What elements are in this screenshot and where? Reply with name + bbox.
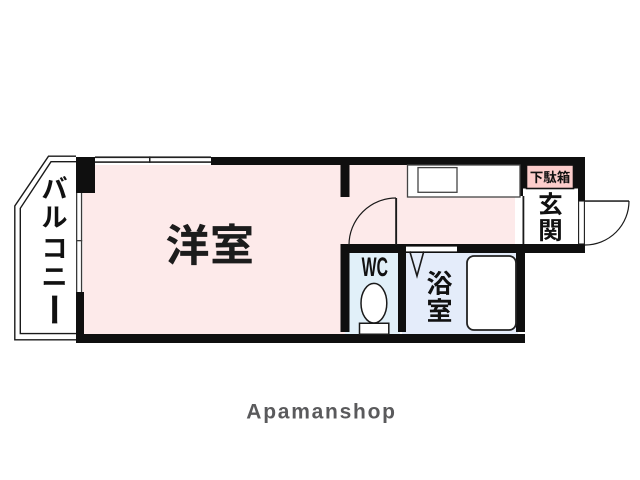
svg-text:Apamanshop: Apamanshop	[246, 401, 395, 424]
